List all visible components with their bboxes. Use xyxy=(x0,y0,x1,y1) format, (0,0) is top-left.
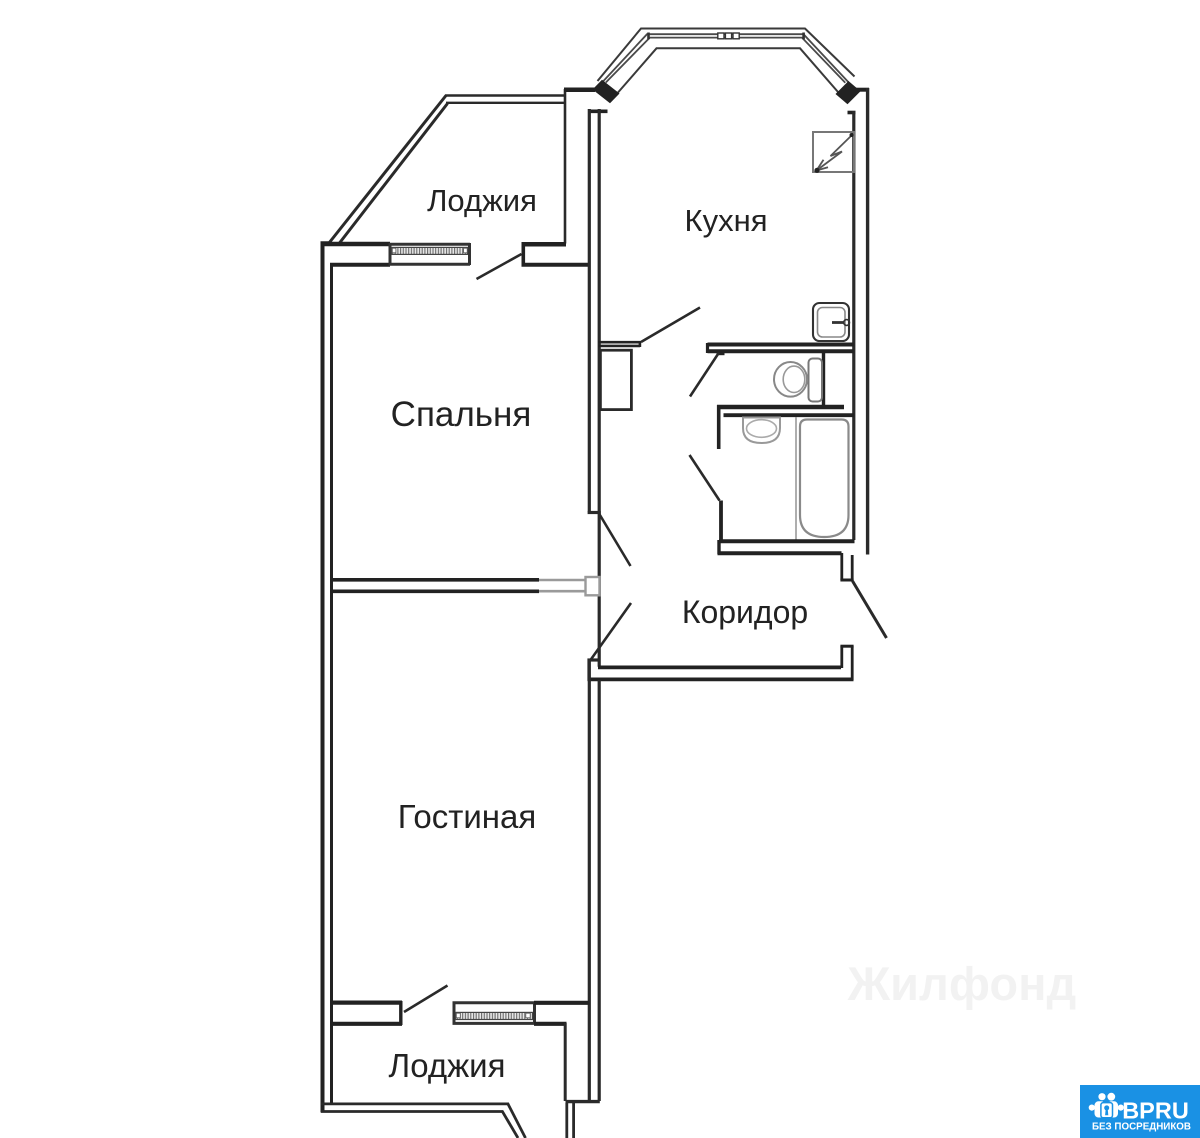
svg-text:Жилфонд: Жилфонд xyxy=(847,957,1077,1010)
svg-text:Спальня: Спальня xyxy=(391,395,532,434)
svg-text:Лоджия: Лоджия xyxy=(427,183,537,218)
svg-text:БЕЗ ПОСРЕДНИКОВ: БЕЗ ПОСРЕДНИКОВ xyxy=(1092,1122,1191,1133)
svg-text:BPRU: BPRU xyxy=(1122,1098,1189,1124)
svg-text:Гостиная: Гостиная xyxy=(398,798,537,835)
svg-text:Кухня: Кухня xyxy=(685,203,768,238)
svg-text:Коридор: Коридор xyxy=(682,594,808,630)
svg-text:Лоджия: Лоджия xyxy=(389,1047,506,1084)
